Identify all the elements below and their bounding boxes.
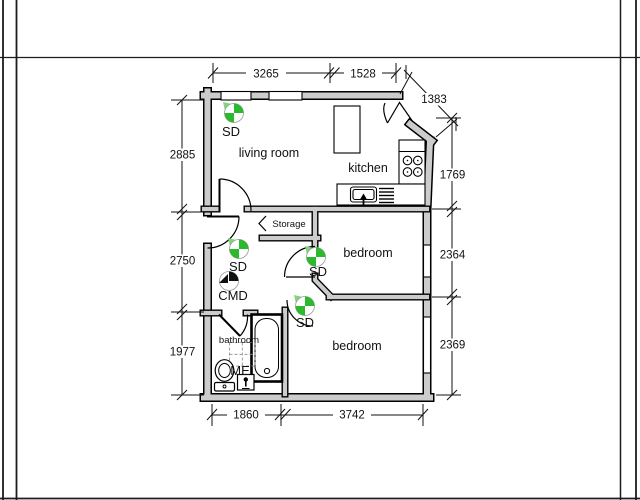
room-label-living-room: living room: [239, 146, 299, 160]
smoke-detector-icon: [294, 295, 315, 316]
smoke-detector-icon: [228, 238, 249, 259]
sink-icon: [351, 187, 377, 205]
device-label-sd: SD: [296, 315, 314, 330]
room-label-bedroom-1: bedroom: [343, 246, 392, 260]
page: SD SD SD SD CMD ME living room kitchen b…: [0, 0, 640, 500]
bathtub: [252, 315, 283, 382]
dimension-entrance-diagonal: 1383: [421, 94, 447, 106]
floor-plan-canvas: SD SD SD SD CMD ME living room kitchen b…: [0, 0, 640, 500]
dimension-right-bedroom-1: 2364: [440, 250, 466, 262]
room-label-bathroom: bathroom: [219, 335, 259, 346]
bathroom-fixtures: [215, 315, 283, 392]
smoke-detector-icon: [223, 102, 244, 123]
dimension-right-kitchen: 1769: [440, 170, 466, 182]
bathroom-door: [219, 315, 248, 337]
dimension-right-bedroom-2: 2369: [440, 340, 466, 352]
device-label-sd: SD: [309, 264, 327, 279]
room-label-kitchen: kitchen: [348, 161, 388, 175]
dimension-left-bathroom: 1977: [170, 347, 196, 359]
room-label-bedroom-2: bedroom: [332, 339, 381, 353]
device-label-cmd: CMD: [218, 288, 248, 303]
device-label-me: ME: [230, 363, 250, 378]
window: [424, 317, 431, 373]
window: [221, 92, 251, 101]
window: [424, 245, 431, 277]
device-label-sd: SD: [222, 124, 240, 139]
dimension-bottom-bathroom: 1860: [233, 410, 259, 422]
device-label-sd: SD: [229, 259, 247, 274]
room-label-storage: Storage: [272, 219, 305, 230]
window: [269, 92, 302, 101]
storage-door: [259, 216, 266, 231]
kitchen-unit: [334, 106, 360, 153]
dimension-top-living: 3265: [253, 69, 279, 81]
dimension-left-living: 2885: [170, 150, 196, 162]
dimension-left-hall: 2750: [170, 256, 196, 268]
dimension-bottom-bedroom: 3742: [339, 410, 365, 422]
dimension-top-kitchen: 1528: [350, 69, 376, 81]
